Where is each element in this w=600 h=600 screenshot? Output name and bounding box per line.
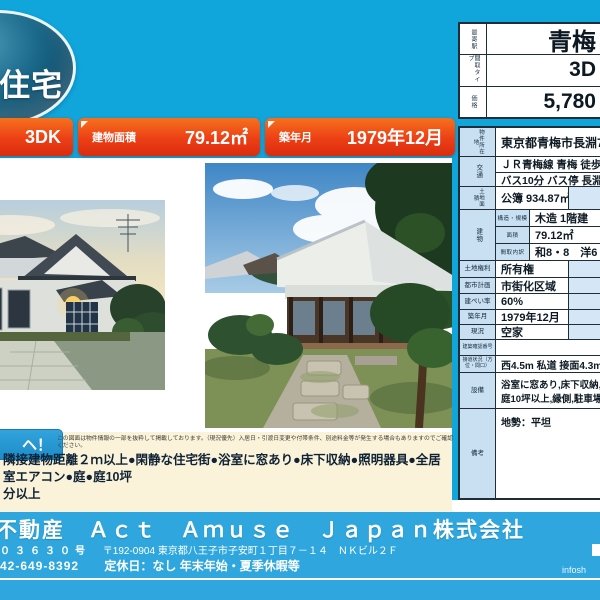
value-current-status: 空家 — [496, 325, 568, 339]
row-current-status: 現況 空家 — [460, 324, 600, 339]
label-price: 価格 — [460, 87, 487, 117]
row-land-area: 土地面積 公簿 934.87㎡ — [460, 186, 600, 209]
badge-built-date: 築年月 1979年12月 — [265, 118, 455, 156]
feature-list-line2: 分以上 — [3, 486, 451, 503]
badge-building-area-label: 建物面積 — [78, 129, 136, 145]
value-price: 5,780 — [487, 87, 600, 117]
row-room-breakdown: 間取内訳 和8・8 洋6 — [496, 243, 600, 260]
value-floor-area: 79.12㎡ — [530, 227, 600, 243]
label-equipment: 設備 — [460, 373, 496, 408]
feature-list-line1: 隣接建物距離２ｍ以上●閑静な住宅街●浴室に窓あり●床下収納●照明器具●全居室エア… — [3, 452, 451, 486]
watermark-text: infosh — [562, 565, 586, 575]
badge-built-date-value: 1979年12月 — [347, 124, 455, 150]
value-built-date: 1979年12月 — [496, 310, 568, 324]
label-nearest-station: 最寄駅 — [460, 24, 487, 54]
footer-logo-fragment — [592, 544, 600, 556]
holiday-info: 定休日：なし 年末年始・夏季休暇等 — [104, 559, 299, 573]
photo-exterior-front — [0, 200, 165, 390]
company-address: 〒192-0904 東京都八王子市子安町１丁目７－１４ ＮＫビル２Ｆ — [103, 546, 398, 557]
label-location: 物件所在地 — [460, 128, 496, 156]
row-building-confirmation: 建築確認番号 — [460, 339, 600, 355]
label-road-frontage: 接道状況（方位・間口） — [460, 356, 496, 372]
label-land-area: 土地面積 — [460, 187, 496, 209]
value-nearest-station: 青梅 — [487, 24, 600, 54]
category-oval-label: 中古住宅 — [0, 60, 135, 105]
value-layout-type: 3D — [487, 55, 600, 85]
label-built-date: 築年月 — [460, 310, 496, 324]
cell-built-date-extra — [568, 310, 600, 324]
row-building: 建物 構造・規模 木造 1階建 面積 79.12㎡ 間取内訳 和8・8 洋6 — [460, 209, 600, 260]
value-city-planning: 市街化区域 — [496, 278, 568, 293]
feature-list: 隣接建物距離２ｍ以上●閑静な住宅街●浴室に窓あり●床下収納●照明器具●全居室エア… — [3, 452, 451, 503]
row-access: 交通 ＪＲ青梅線 青梅 徒歩22分 バス10分 バス停 長淵7丁 — [460, 156, 600, 186]
label-structure: 構造・規模 — [496, 210, 530, 226]
row-remarks: 備考 地勢：平坦 — [460, 408, 600, 498]
value-road-frontage: 西4.5m 私道 接面4.3m 位 — [496, 356, 600, 372]
label-building-confirmation: 建築確認番号 — [460, 340, 496, 355]
row-city-planning: 都市計画 市街化区域 — [460, 277, 600, 293]
badge-layout-value: 3DK — [25, 127, 73, 148]
footer-divider-line — [0, 578, 600, 580]
row-nearest-station: 最寄駅 青梅 — [460, 24, 600, 54]
badge-layout: 3DK — [0, 118, 73, 156]
property-spec-table: 物件所在地 東京都青梅市長淵7丁目 交通 ＪＲ青梅線 青梅 徒歩22分 バス10… — [458, 126, 600, 500]
value-equipment-line2: 庭10坪以上,縁側,駐車場 — [496, 391, 600, 405]
row-layout-type: 間取タイプ 3D — [460, 54, 600, 85]
row-equipment: 設備 浴室に窓あり,床下収納,照明 庭10坪以上,縁側,駐車場 — [460, 372, 600, 408]
photo-garden — [205, 163, 452, 428]
label-land-rights: 土地権利 — [460, 261, 496, 277]
row-road-frontage: 接道状況（方位・間口） 西4.5m 私道 接面4.3m 位 — [460, 355, 600, 372]
license-number: ０３６３０号 — [0, 546, 90, 557]
badge-built-date-label: 築年月 — [265, 129, 312, 145]
label-building: 建物 — [460, 210, 496, 260]
cell-city-planning-extra — [568, 278, 600, 293]
cell-land-rights-extra — [568, 261, 600, 277]
company-address-line: ０３６３０号 〒192-0904 東京都八王子市子安町１丁目７－１４ ＮＫビル２… — [0, 542, 600, 557]
row-structure: 構造・規模 木造 1階建 — [496, 210, 600, 226]
value-building-confirmation — [496, 340, 600, 355]
row-coverage-ratio: 建ぺい率 60% — [460, 293, 600, 309]
value-structure: 木造 1階建 — [530, 210, 600, 226]
value-location: 東京都青梅市長淵7丁目 — [496, 128, 600, 156]
cell-land-area-extra — [568, 187, 600, 209]
price-summary-table: 最寄駅 青梅 間取タイプ 3D 価格 5,780 — [458, 22, 600, 119]
value-room-breakdown: 和8・8 洋6 — [530, 244, 600, 260]
row-land-rights: 土地権利 所有権 — [460, 260, 600, 277]
value-equipment-line1: 浴室に窓あり,床下収納,照明 — [496, 377, 600, 391]
phone-number: 42-649-8392 — [0, 559, 79, 573]
corner-fold-icon — [268, 121, 275, 128]
company-name: 不動産 Ａｃｔ Ａｍｕｓｅ Ｊａｐａｎ株式会社 — [0, 514, 600, 544]
label-access: 交通 — [460, 157, 496, 186]
label-floor-area: 面積 — [496, 227, 530, 243]
value-land-area: 公簿 934.87㎡ — [496, 187, 568, 209]
row-price: 価格 5,780 — [460, 86, 600, 117]
corner-fold-icon — [81, 121, 88, 128]
label-remarks: 備考 — [460, 409, 496, 498]
badge-building-area: 建物面積 79.12㎡ — [78, 118, 260, 156]
disclaimer-text: この図面は物件情報の一部を抜粋して掲載しております。（現況優先）入居日・引渡日変… — [57, 436, 453, 450]
real-estate-flyer: { "colors": { "page_background": "#10a6d… — [0, 0, 600, 600]
badge-building-area-value: 79.12㎡ — [185, 124, 260, 150]
label-current-status: 現況 — [460, 325, 496, 339]
row-built-date: 築年月 1979年12月 — [460, 309, 600, 324]
label-layout-type: 間取タイプ — [460, 55, 487, 85]
cell-current-status-extra — [568, 325, 600, 339]
company-contact-line: 42-649-8392 定休日：なし 年末年始・夏季休暇等 — [0, 557, 600, 574]
value-remarks: 地勢：平坦 — [496, 409, 600, 498]
cell-coverage-ratio-extra — [568, 294, 600, 309]
value-coverage-ratio: 60% — [496, 294, 568, 309]
label-room-breakdown: 間取内訳 — [496, 244, 530, 260]
value-land-rights: 所有権 — [496, 261, 568, 277]
value-access-line1: ＪＲ青梅線 青梅 徒歩22分 — [496, 157, 600, 172]
label-city-planning: 都市計画 — [460, 278, 496, 293]
table-bottom-gap — [452, 500, 600, 512]
label-coverage-ratio: 建ぺい率 — [460, 294, 496, 309]
row-location: 物件所在地 東京都青梅市長淵7丁目 — [460, 128, 600, 156]
row-floor-area: 面積 79.12㎡ — [496, 226, 600, 243]
